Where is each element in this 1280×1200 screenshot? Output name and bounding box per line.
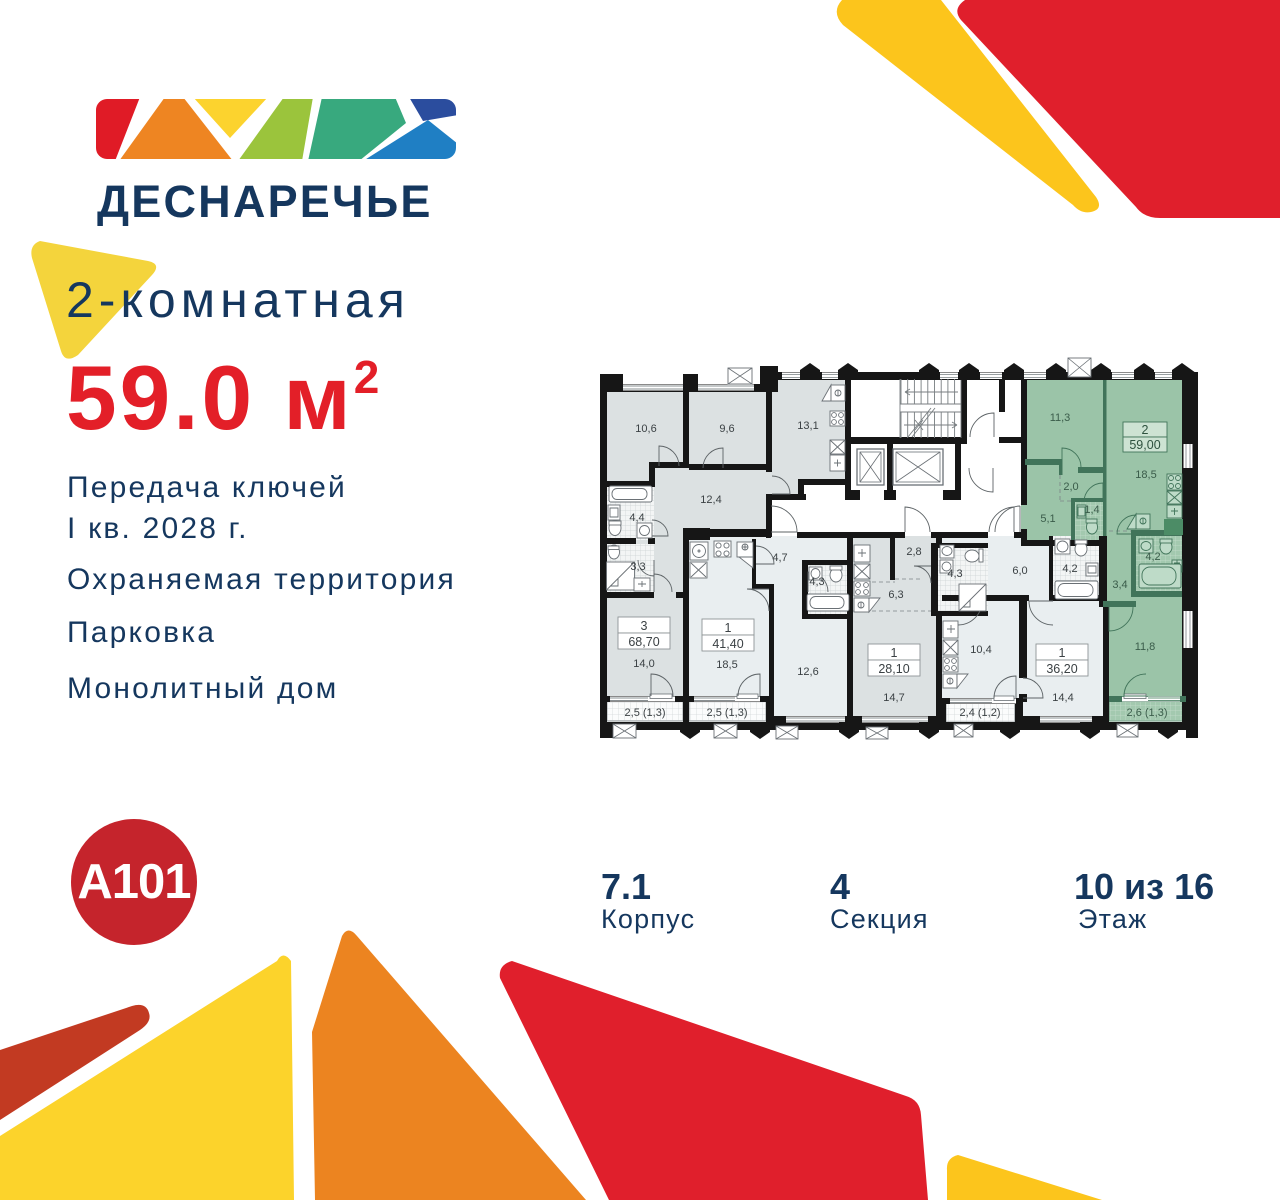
- svg-text:3,4: 3,4: [1112, 579, 1127, 591]
- svg-text:4,7: 4,7: [772, 552, 787, 564]
- svg-text:18,5: 18,5: [716, 659, 737, 671]
- svg-text:11,8: 11,8: [1135, 641, 1156, 653]
- svg-text:4,2: 4,2: [1145, 551, 1160, 563]
- svg-text:2,5 (1,3): 2,5 (1,3): [625, 707, 666, 719]
- svg-text:6,0: 6,0: [1012, 565, 1027, 577]
- svg-text:3,3: 3,3: [630, 561, 645, 573]
- svg-text:13,1: 13,1: [797, 420, 818, 432]
- svg-text:1: 1: [1059, 646, 1066, 660]
- svg-text:10,4: 10,4: [970, 644, 991, 656]
- svg-text:5,1: 5,1: [1040, 513, 1055, 525]
- svg-text:41,40: 41,40: [712, 637, 743, 651]
- svg-text:2,5 (1,3): 2,5 (1,3): [707, 707, 748, 719]
- svg-text:2,0: 2,0: [1063, 481, 1078, 493]
- svg-text:68,70: 68,70: [628, 635, 659, 649]
- svg-text:1,4: 1,4: [1084, 504, 1099, 516]
- svg-text:4,2: 4,2: [1062, 563, 1077, 575]
- svg-text:3: 3: [641, 619, 648, 633]
- svg-text:12,4: 12,4: [700, 494, 721, 506]
- svg-text:2,4 (1,2): 2,4 (1,2): [960, 707, 1001, 719]
- svg-text:28,10: 28,10: [878, 662, 909, 676]
- svg-text:11,3: 11,3: [1050, 412, 1071, 424]
- svg-text:1: 1: [891, 646, 898, 660]
- svg-text:6,3: 6,3: [888, 589, 903, 601]
- svg-text:1: 1: [725, 621, 732, 635]
- svg-text:10,6: 10,6: [635, 423, 656, 435]
- svg-text:4,3: 4,3: [947, 568, 962, 580]
- svg-text:4,3: 4,3: [809, 576, 824, 588]
- svg-text:18,5: 18,5: [1135, 469, 1156, 481]
- svg-text:2: 2: [1142, 423, 1149, 437]
- svg-text:14,7: 14,7: [883, 692, 904, 704]
- svg-text:14,4: 14,4: [1052, 692, 1073, 704]
- svg-text:59,00: 59,00: [1129, 438, 1160, 452]
- svg-text:9,6: 9,6: [719, 423, 734, 435]
- svg-text:4,4: 4,4: [629, 512, 644, 524]
- svg-text:14,0: 14,0: [633, 658, 654, 670]
- svg-text:36,20: 36,20: [1046, 662, 1077, 676]
- svg-text:2,8: 2,8: [906, 546, 921, 558]
- svg-text:12,6: 12,6: [797, 666, 818, 678]
- svg-text:2,6 (1,3): 2,6 (1,3): [1127, 707, 1168, 719]
